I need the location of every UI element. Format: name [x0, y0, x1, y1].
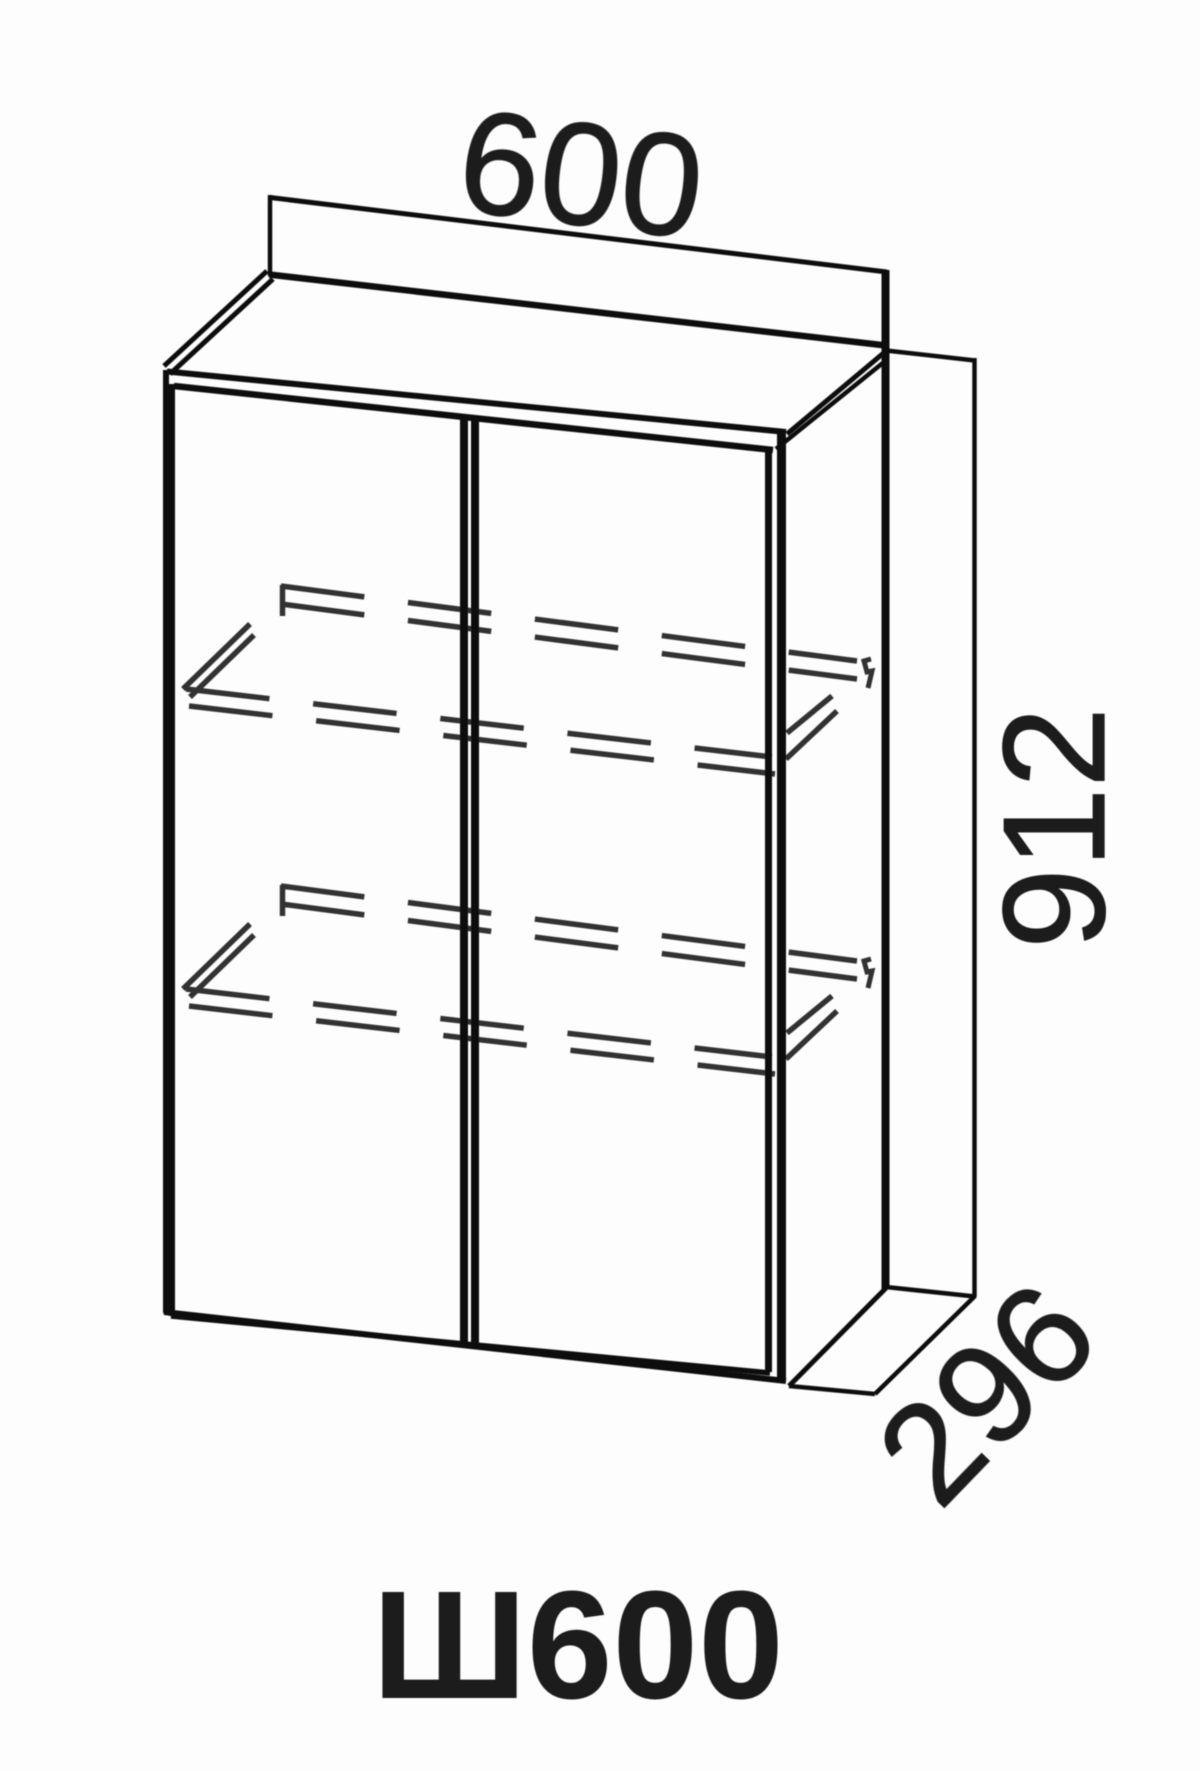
svg-text:912: 912: [973, 707, 1135, 949]
svg-text:Ш600: Ш600: [372, 1559, 784, 1731]
svg-text:600: 600: [450, 78, 712, 269]
